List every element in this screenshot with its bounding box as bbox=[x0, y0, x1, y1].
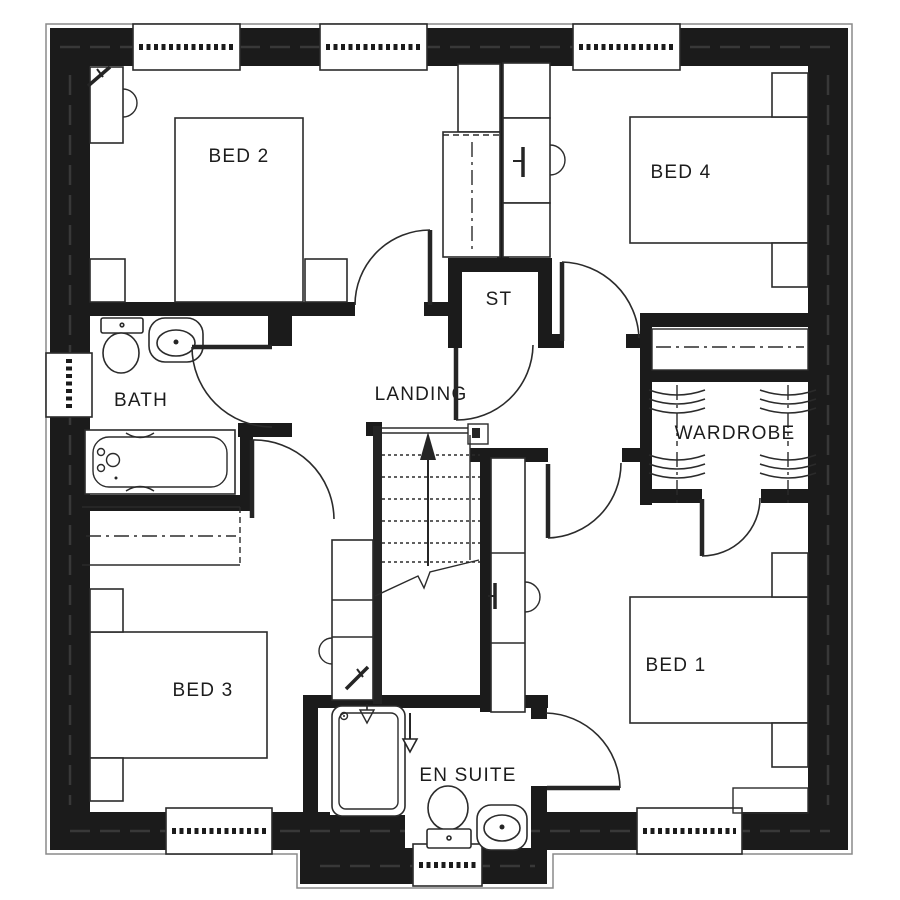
room-bed3: BED 3 bbox=[90, 589, 267, 801]
stair-treads bbox=[382, 455, 480, 562]
stairs-up-arrow-icon bbox=[420, 432, 436, 566]
window-icon-bed3 bbox=[166, 808, 272, 854]
room-bed4: BED 4 bbox=[630, 73, 808, 287]
door-swing-icon-bath bbox=[192, 347, 272, 427]
room-label-bed3: BED 3 bbox=[173, 680, 234, 701]
washbasin-icon bbox=[477, 805, 527, 850]
room-bed1: BED 1 bbox=[630, 553, 808, 813]
built-in-cupboards-center bbox=[443, 63, 565, 257]
stair-stringer bbox=[373, 426, 382, 704]
door-swing-icon-bed4 bbox=[562, 262, 639, 341]
knob-swing-icon bbox=[525, 582, 540, 612]
room-label-ensuite: EN SUITE bbox=[419, 765, 516, 786]
knob-swing-icon bbox=[123, 89, 137, 117]
door-swing-icon-bed3 bbox=[252, 440, 334, 519]
bedside-table bbox=[90, 758, 123, 801]
door-swing-icon-ensuite bbox=[546, 713, 620, 788]
toilet-icon bbox=[101, 318, 143, 373]
bedside-table bbox=[772, 243, 808, 287]
room-label-bath: BATH bbox=[114, 390, 168, 411]
cupboard bbox=[503, 118, 550, 203]
bedside-table bbox=[305, 259, 347, 302]
knob-swing-icon bbox=[319, 638, 332, 664]
bedside-table bbox=[772, 553, 808, 597]
floor-plan-drawing: BED 2 BED 4 ST bbox=[0, 0, 900, 900]
cupboard bbox=[332, 540, 373, 700]
door-swing-icon-st bbox=[456, 345, 533, 420]
window-icon-ensuite bbox=[413, 844, 482, 886]
bathtub-icon bbox=[85, 430, 235, 494]
room-bath: BATH bbox=[85, 318, 235, 494]
washbasin-icon bbox=[149, 318, 203, 362]
bedside-table bbox=[90, 259, 125, 302]
eaves-storage bbox=[82, 507, 240, 565]
window-icon-bed1 bbox=[637, 808, 742, 854]
door-swing-icon-bed1 bbox=[548, 463, 621, 538]
window-icon-bed2 bbox=[133, 24, 240, 70]
radiator-icon bbox=[733, 788, 808, 813]
room-label-bed4: BED 4 bbox=[651, 162, 712, 183]
bedside-table bbox=[772, 73, 808, 117]
hanging-rail-icon bbox=[649, 385, 816, 505]
room-wardrobe: WARDROBE bbox=[649, 329, 816, 505]
newel-post-cap bbox=[472, 428, 480, 438]
room-label-st: ST bbox=[486, 289, 513, 310]
door-swing-icon-bed2 bbox=[355, 230, 430, 305]
room-label-bed2: BED 2 bbox=[209, 146, 270, 167]
cupboard bbox=[458, 64, 500, 132]
floor-plan-page: BED 2 BED 4 ST bbox=[0, 0, 900, 900]
room-label-landing: LANDING bbox=[375, 384, 468, 405]
bedside-table bbox=[90, 589, 123, 632]
stair-side-cupboard-left bbox=[319, 540, 373, 700]
window-icon-bed4 bbox=[573, 24, 680, 70]
shower-icon bbox=[332, 704, 405, 816]
room-st: ST bbox=[486, 289, 513, 310]
room-label-wardrobe: WARDROBE bbox=[675, 423, 796, 444]
stair-side-cupboard-right bbox=[488, 458, 540, 712]
window-icon-landing-top bbox=[320, 24, 427, 70]
shelf bbox=[652, 329, 808, 370]
stairs bbox=[373, 424, 488, 704]
door-swing-icon-wardrobe bbox=[702, 498, 760, 556]
window-icon-bath bbox=[46, 353, 92, 417]
room-bed2: BED 2 bbox=[88, 67, 347, 302]
bedside-table bbox=[772, 723, 808, 767]
room-label-bed1: BED 1 bbox=[646, 655, 707, 676]
knob-swing-icon bbox=[550, 145, 565, 175]
toilet-icon bbox=[427, 786, 471, 848]
cupboard bbox=[503, 63, 550, 118]
cupboard bbox=[503, 203, 550, 257]
